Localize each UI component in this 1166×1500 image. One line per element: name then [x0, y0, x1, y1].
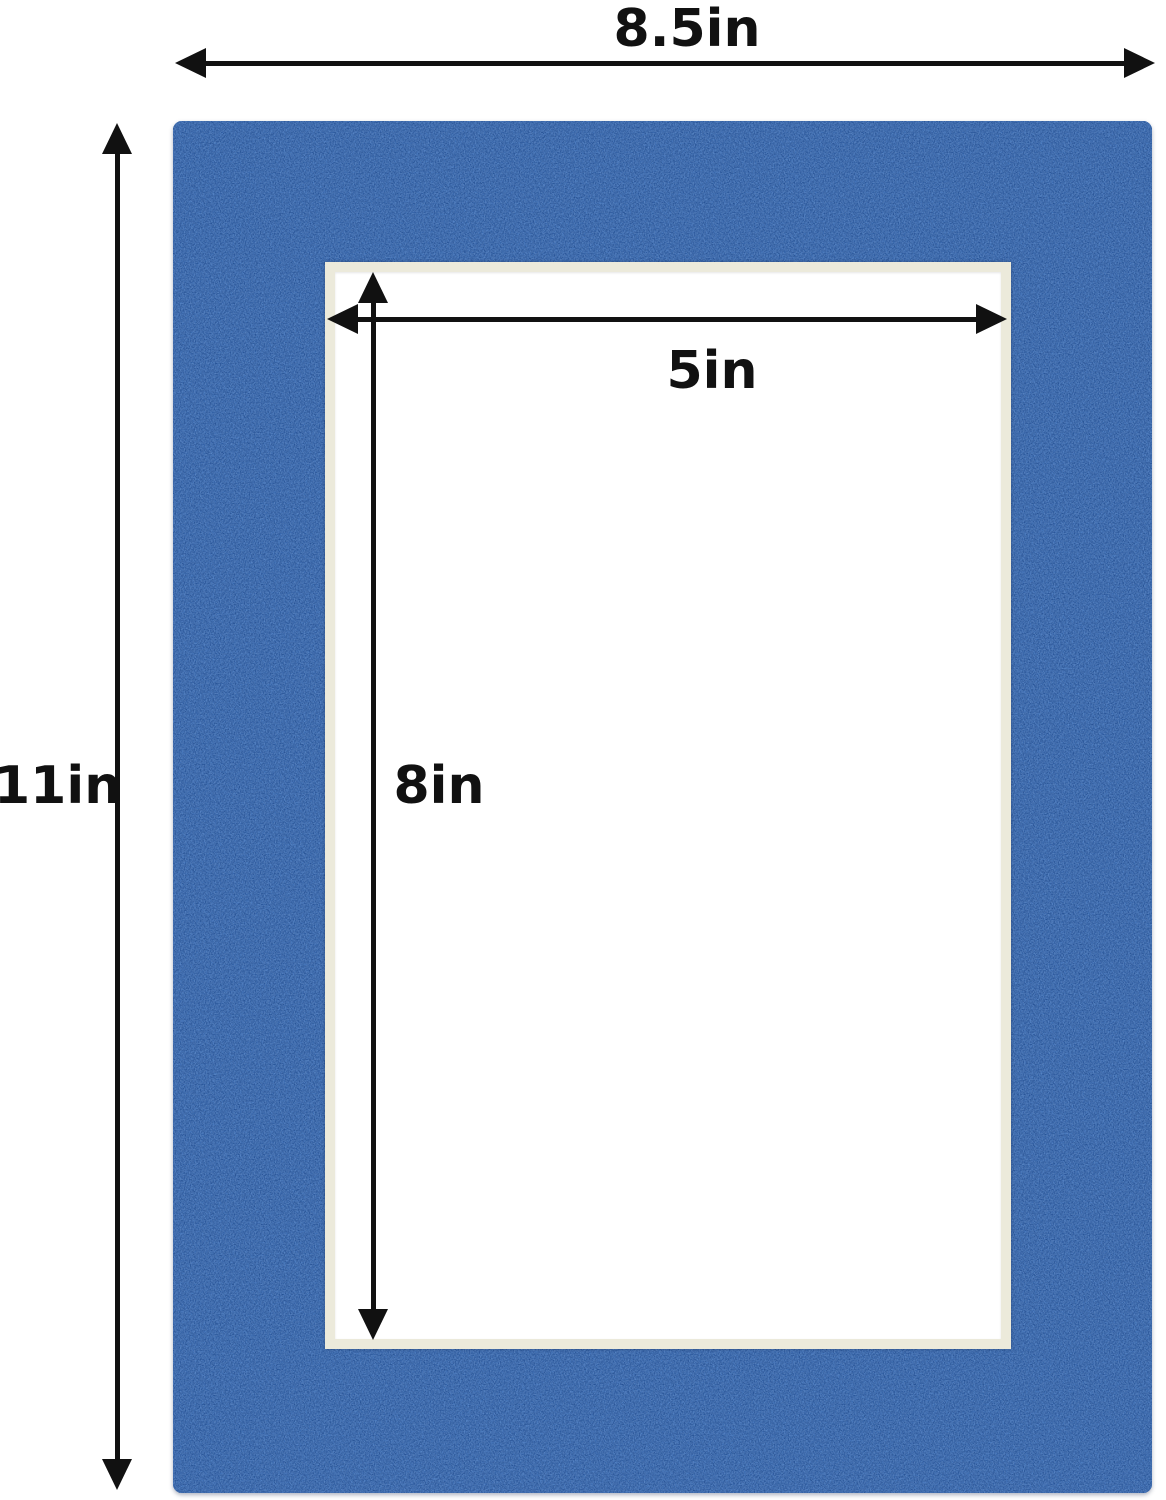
arrowhead-down-icon [102, 1459, 132, 1490]
arrow-shaft [201, 61, 1129, 66]
outer-width-arrow [175, 48, 1155, 78]
arrow-shaft [115, 149, 120, 1464]
outer-height-arrow [102, 123, 132, 1490]
arrowhead-right-icon [976, 304, 1007, 334]
arrow-shaft [371, 298, 376, 1314]
arrowhead-down-icon [358, 1309, 388, 1340]
outer-height-label: 11in [0, 759, 104, 814]
arrowhead-right-icon [1124, 48, 1155, 78]
opening-width-arrow [327, 304, 1007, 334]
opening-width-label: 5in [612, 344, 812, 399]
arrow-shaft [353, 317, 981, 322]
opening-height-arrow [358, 272, 388, 1340]
product-diagram-canvas: 8.5in 11in [0, 0, 1166, 1500]
